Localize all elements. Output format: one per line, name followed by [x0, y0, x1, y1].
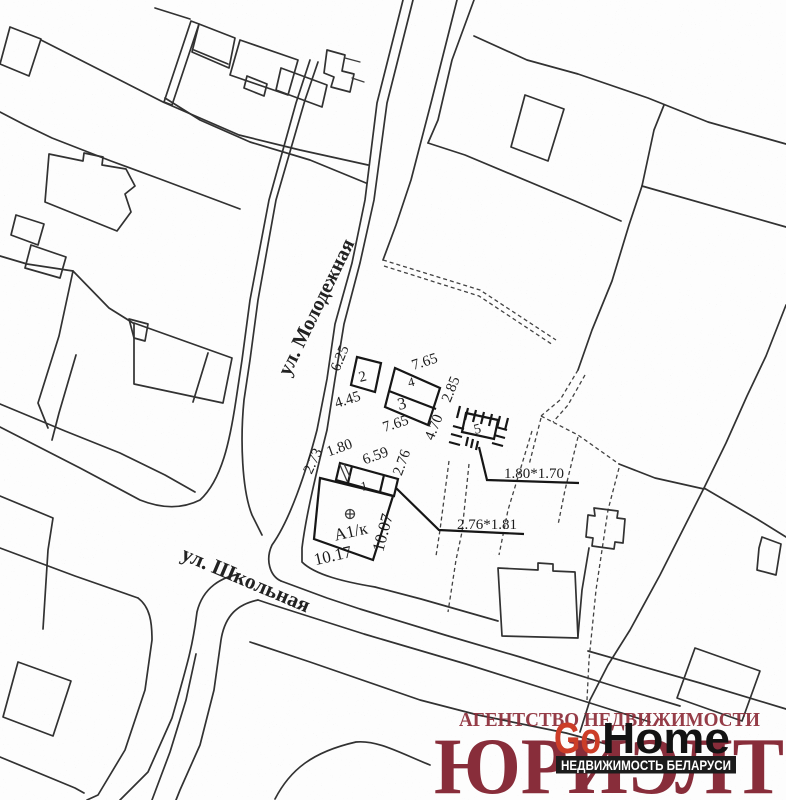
svg-text:Home: Home: [602, 714, 730, 763]
svg-text:Go: Go: [554, 714, 601, 763]
svg-text:НЕДВИЖИМОСТЬ БЕЛАРУСИ: НЕДВИЖИМОСТЬ БЕЛАРУСИ: [561, 757, 731, 773]
svg-text:1.80*1.70: 1.80*1.70: [504, 466, 564, 482]
svg-text:2.76*1.81: 2.76*1.81: [457, 517, 517, 533]
